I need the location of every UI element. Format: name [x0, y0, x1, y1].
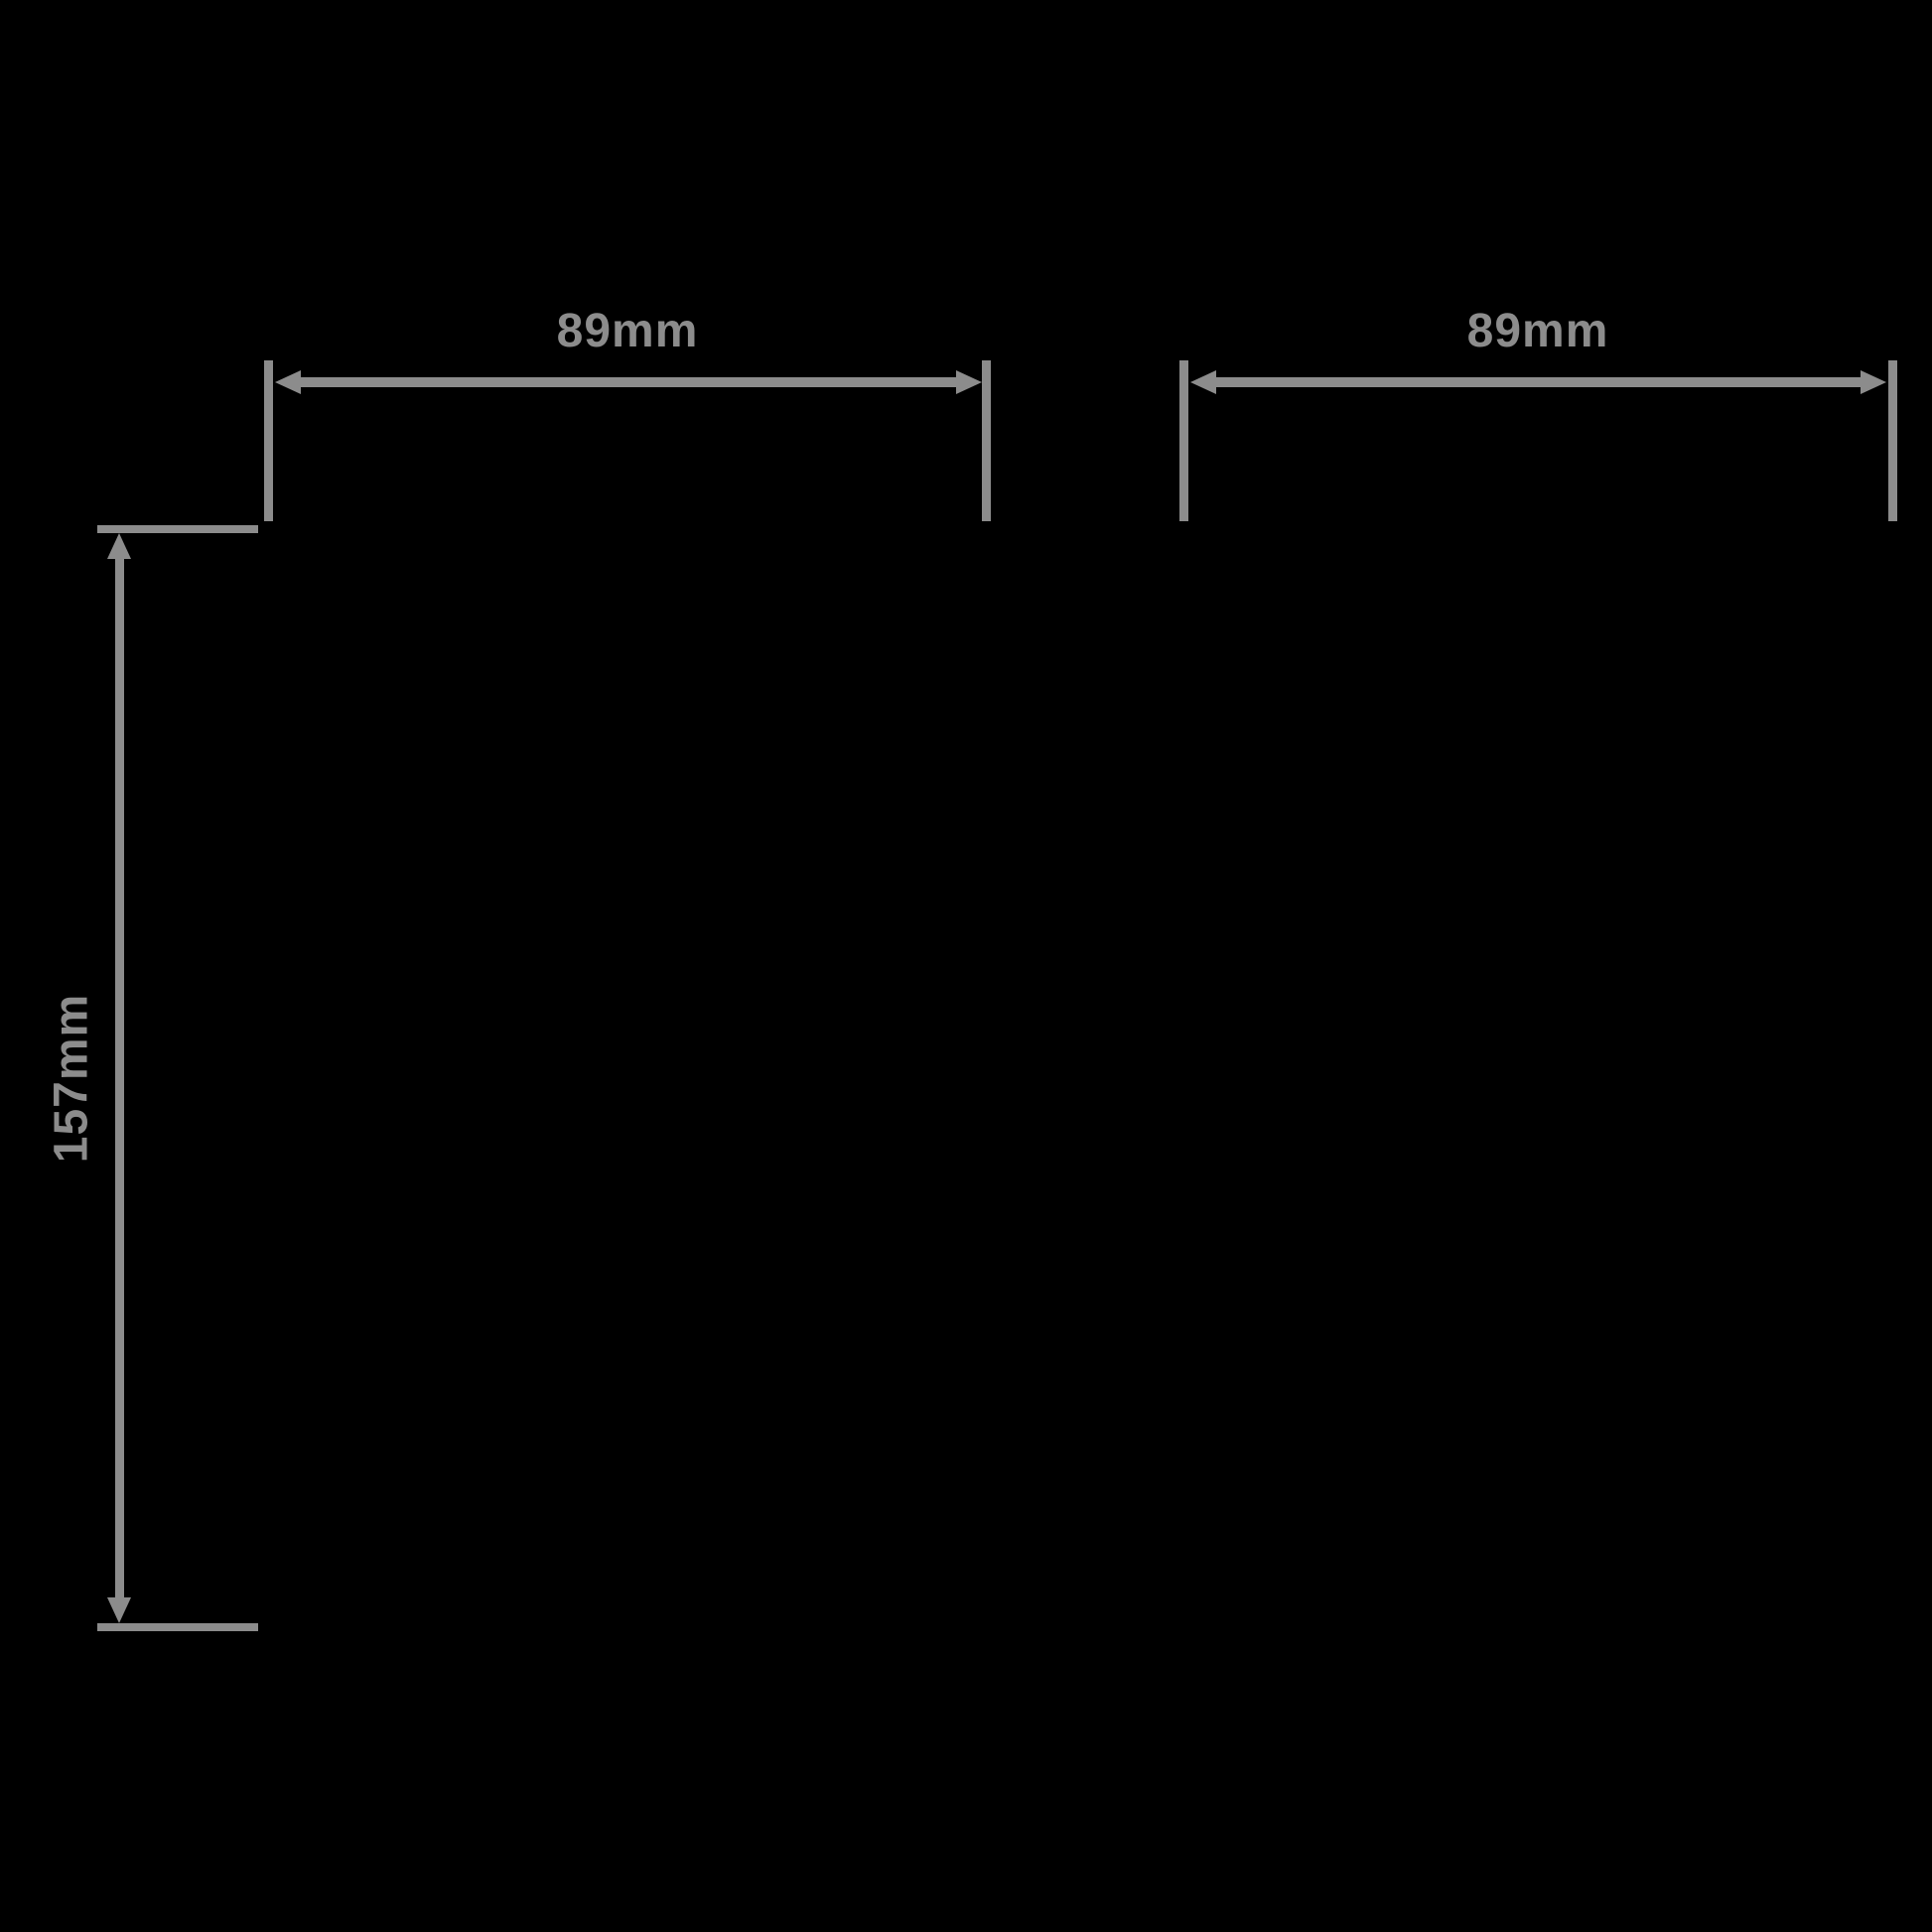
dimension-line [275, 370, 982, 394]
arrow-left-icon [275, 370, 301, 394]
extension-line [97, 1623, 258, 1631]
arrow-right-icon [956, 370, 982, 394]
dimension-line-shaft [1216, 377, 1861, 387]
arrow-down-icon [107, 1597, 131, 1623]
dimension-diagram: 89mm 89mm 157mm [0, 0, 1932, 1932]
extension-line [97, 525, 258, 533]
dimension-label: 89mm [1467, 304, 1609, 358]
dimension-line [1190, 370, 1886, 394]
arrow-right-icon [1861, 370, 1886, 394]
extension-line [1888, 360, 1897, 521]
dimension-label: 157mm [45, 994, 99, 1163]
extension-line [1179, 360, 1188, 521]
dimension-line-shaft [115, 559, 124, 1597]
arrow-left-icon [1190, 370, 1216, 394]
extension-line [264, 360, 273, 521]
arrow-up-icon [107, 533, 131, 559]
dimension-line-shaft [301, 377, 956, 387]
dimension-label: 89mm [557, 304, 699, 358]
extension-line [982, 360, 991, 521]
dimension-line [107, 533, 131, 1623]
